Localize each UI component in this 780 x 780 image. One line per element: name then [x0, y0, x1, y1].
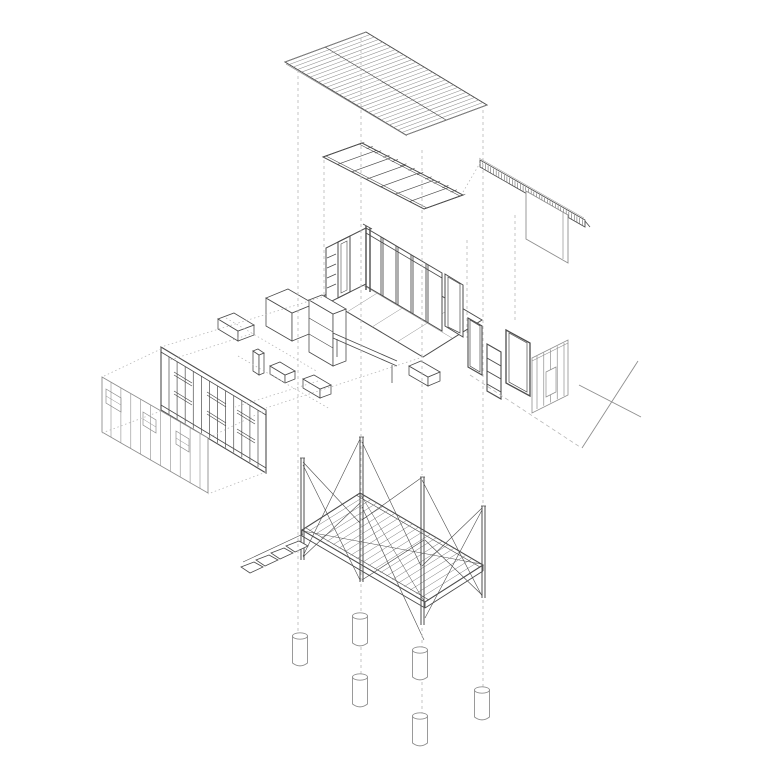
steel-floor-platform — [241, 437, 486, 640]
eave-fascia-beam — [479, 158, 590, 263]
site-axis-marks — [579, 361, 641, 448]
roof-framing-panel — [323, 142, 465, 209]
concrete-piers — [293, 613, 490, 746]
corrugated-roof-sheet — [285, 32, 487, 136]
architectural-drawing-canvas — [0, 0, 780, 780]
exploded-axonometric-diagram — [0, 0, 780, 780]
